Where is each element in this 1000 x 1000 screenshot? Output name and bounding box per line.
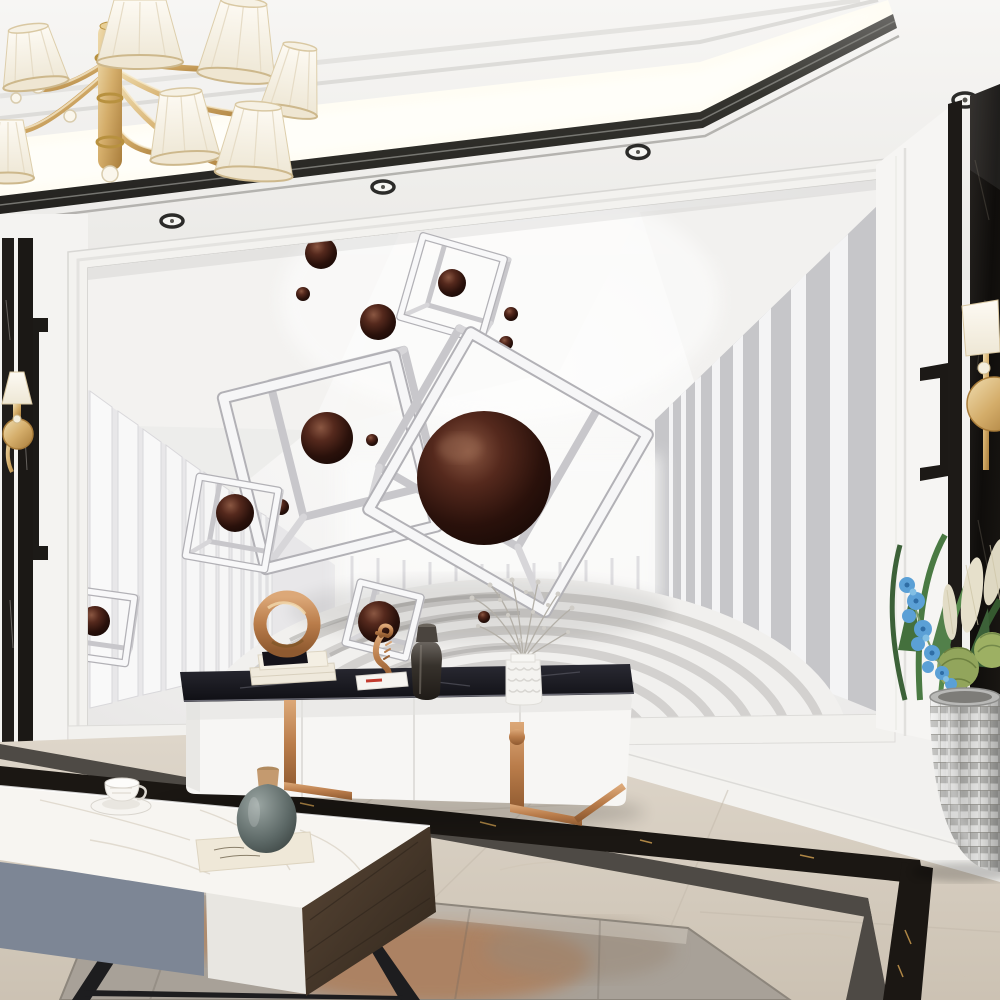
sconce-shade bbox=[962, 300, 1000, 356]
copper-knob bbox=[509, 729, 525, 745]
mural-sphere bbox=[301, 412, 353, 464]
vase-highlight bbox=[248, 797, 260, 827]
sconce-backplate bbox=[3, 419, 33, 449]
sconce-crystal bbox=[978, 362, 990, 374]
mural-sphere bbox=[438, 269, 466, 297]
mural-sphere bbox=[216, 494, 254, 532]
living-room-photo bbox=[0, 0, 1000, 1000]
red-bookmark bbox=[366, 680, 382, 681]
left-marble-stripe bbox=[2, 238, 14, 743]
sconce-crystal bbox=[13, 415, 21, 423]
mural-sphere-large bbox=[417, 411, 551, 545]
glass-highlight bbox=[420, 645, 421, 694]
left-marble-stripe bbox=[18, 238, 33, 743]
scene-canvas bbox=[0, 0, 1000, 1000]
sphere-highlight bbox=[438, 434, 482, 462]
spotlight bbox=[161, 215, 183, 227]
spotlight bbox=[627, 146, 649, 159]
spotlight bbox=[372, 181, 394, 193]
